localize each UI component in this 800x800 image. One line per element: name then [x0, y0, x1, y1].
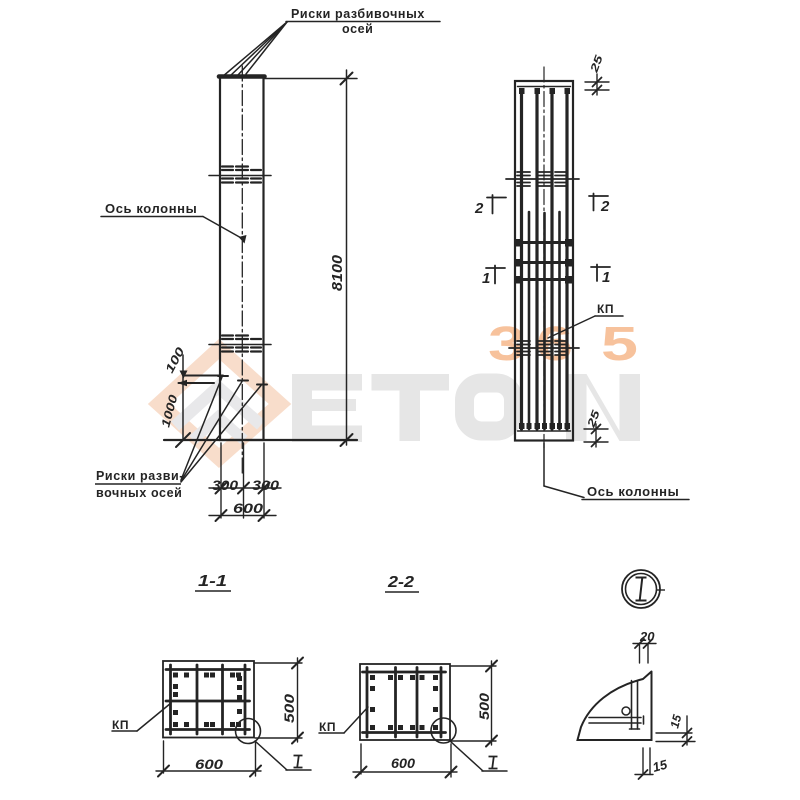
svg-text:20: 20	[639, 629, 655, 644]
svg-text:500: 500	[281, 694, 297, 723]
svg-text:300: 300	[212, 477, 238, 493]
svg-text:2: 2	[600, 198, 610, 215]
svg-text:2: 2	[474, 200, 484, 217]
svg-text:1-1: 1-1	[198, 573, 227, 590]
svg-text:Риски разбивочных: Риски разбивочных	[291, 7, 425, 21]
svg-text:осей: осей	[342, 22, 373, 36]
svg-text:500: 500	[476, 693, 492, 720]
svg-text:300: 300	[252, 477, 279, 493]
svg-text:вочных осей: вочных осей	[96, 486, 182, 500]
svg-text:600: 600	[233, 500, 263, 516]
svg-text:КП: КП	[319, 720, 336, 734]
svg-text:2-2: 2-2	[387, 574, 415, 591]
svg-text:600: 600	[195, 756, 223, 772]
svg-text:Риски разви-: Риски разви-	[96, 469, 184, 483]
svg-text:1: 1	[482, 270, 490, 287]
svg-text:Ось колонны: Ось колонны	[105, 201, 197, 216]
svg-text:Ось колонны: Ось колонны	[587, 484, 679, 499]
svg-text:8100: 8100	[329, 254, 346, 291]
svg-text:КП: КП	[112, 718, 129, 732]
svg-text:600: 600	[391, 755, 415, 771]
svg-text:КП: КП	[597, 302, 614, 316]
svg-text:1: 1	[602, 269, 610, 286]
svg-text:5: 5	[601, 318, 638, 371]
